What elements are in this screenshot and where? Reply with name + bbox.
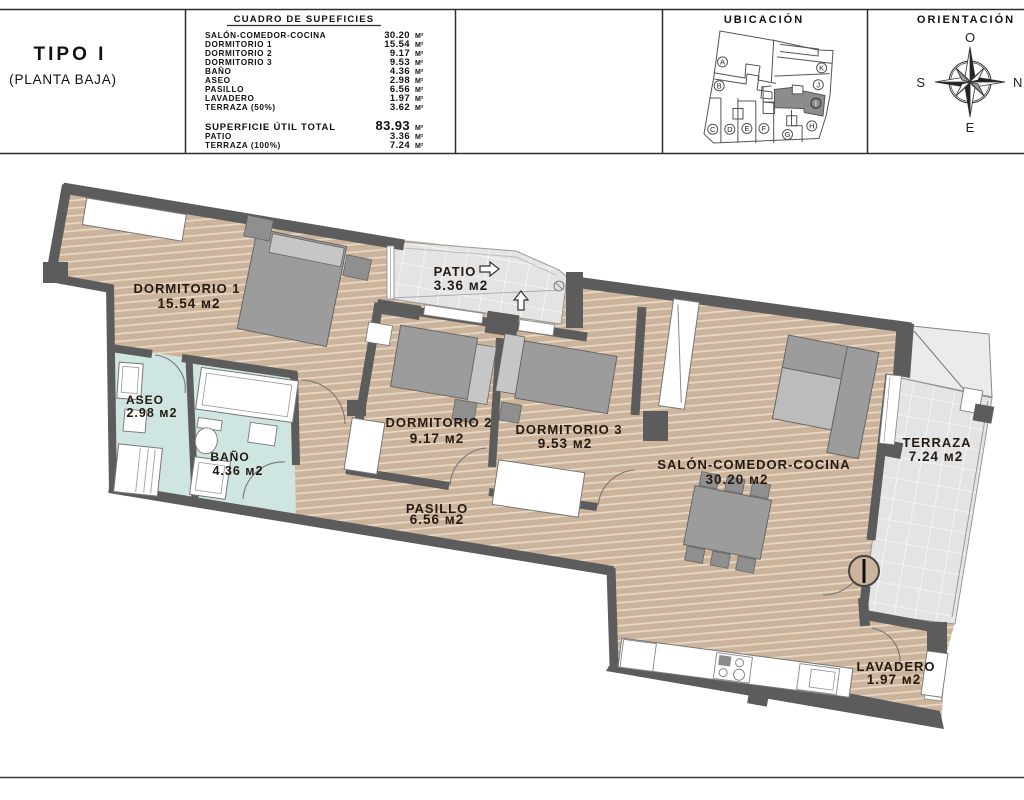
svg-text:DORMITORIO 1: DORMITORIO 1 <box>205 40 272 49</box>
svg-text:M²: M² <box>415 87 424 94</box>
svg-text:M²: M² <box>415 105 424 112</box>
svg-text:ASEO: ASEO <box>126 393 164 407</box>
svg-text:LAVADERO: LAVADERO <box>205 94 255 103</box>
svg-text:TIPO I: TIPO I <box>34 44 107 65</box>
svg-text:F: F <box>762 124 767 133</box>
svg-text:G: G <box>785 130 791 139</box>
svg-text:B: B <box>717 82 722 91</box>
svg-text:SALÓN-COMEDOR-COCINA: SALÓN-COMEDOR-COCINA <box>205 29 326 40</box>
svg-text:SUPERFICIE ÚTIL TOTAL: SUPERFICIE ÚTIL TOTAL <box>205 121 336 133</box>
svg-text:SALÓN-COMEDOR-COCINA: SALÓN-COMEDOR-COCINA <box>657 457 850 472</box>
svg-text:K: K <box>819 64 824 73</box>
svg-text:9.53 м2: 9.53 м2 <box>538 436 593 451</box>
svg-text:S: S <box>916 75 925 90</box>
svg-text:83.93: 83.93 <box>375 118 410 133</box>
svg-text:M²: M² <box>415 125 424 132</box>
svg-text:4.36 м2: 4.36 м2 <box>212 464 263 478</box>
svg-text:PASILLO: PASILLO <box>205 85 244 94</box>
svg-text:D: D <box>727 125 733 134</box>
svg-text:E: E <box>966 120 975 135</box>
svg-text:7.24: 7.24 <box>390 140 410 151</box>
svg-text:3.36 м2: 3.36 м2 <box>434 278 489 293</box>
svg-text:CUADRO DE SUPEFICIES: CUADRO DE SUPEFICIES <box>234 14 375 25</box>
svg-text:7.24 м2: 7.24 м2 <box>909 449 964 464</box>
svg-text:TERRAZA: TERRAZA <box>902 435 971 450</box>
svg-text:30.20 м2: 30.20 м2 <box>705 472 768 487</box>
svg-text:H: H <box>809 122 814 131</box>
svg-text:6.56 м2: 6.56 м2 <box>410 512 465 527</box>
svg-text:M²: M² <box>415 33 424 40</box>
svg-text:A: A <box>720 58 725 67</box>
svg-text:PATIO: PATIO <box>205 132 232 141</box>
svg-text:O: O <box>965 30 975 45</box>
svg-text:M²: M² <box>415 60 424 67</box>
svg-text:M²: M² <box>415 134 424 141</box>
svg-text:(PLANTA BAJA): (PLANTA BAJA) <box>9 72 117 87</box>
svg-text:15.54 м2: 15.54 м2 <box>157 296 220 311</box>
svg-text:J: J <box>816 80 820 89</box>
svg-text:M²: M² <box>415 143 424 150</box>
svg-text:M²: M² <box>415 69 424 76</box>
svg-text:M²: M² <box>415 42 424 49</box>
svg-text:UBICACIÓN: UBICACIÓN <box>724 13 804 26</box>
svg-text:3.62: 3.62 <box>390 102 410 113</box>
svg-text:ASEO: ASEO <box>205 76 231 85</box>
svg-text:ORIENTACIÓN: ORIENTACIÓN <box>917 13 1015 26</box>
svg-text:TERRAZA (100%): TERRAZA (100%) <box>205 141 281 150</box>
svg-text:DORMITORIO 2: DORMITORIO 2 <box>385 415 492 430</box>
svg-text:BAÑO: BAÑO <box>205 66 232 76</box>
svg-text:M²: M² <box>415 51 424 58</box>
svg-text:M²: M² <box>415 96 424 103</box>
svg-text:DORMITORIO 3: DORMITORIO 3 <box>205 58 272 67</box>
svg-text:DORMITORIO 3: DORMITORIO 3 <box>515 422 622 437</box>
svg-text:BAÑO: BAÑO <box>210 449 249 464</box>
svg-text:DORMITORIO 1: DORMITORIO 1 <box>133 281 240 296</box>
svg-text:N: N <box>1013 75 1022 90</box>
svg-text:M²: M² <box>415 78 424 85</box>
svg-text:I: I <box>815 99 817 108</box>
svg-text:TERRAZA (50%): TERRAZA (50%) <box>205 103 276 112</box>
svg-text:PATIO: PATIO <box>434 264 477 279</box>
svg-text:2.98 м2: 2.98 м2 <box>126 406 177 420</box>
svg-text:E: E <box>744 124 749 133</box>
svg-text:C: C <box>710 125 716 134</box>
svg-text:1.97 м2: 1.97 м2 <box>867 672 922 687</box>
svg-text:9.17 м2: 9.17 м2 <box>410 431 465 446</box>
svg-text:DORMITORIO 2: DORMITORIO 2 <box>205 49 272 58</box>
